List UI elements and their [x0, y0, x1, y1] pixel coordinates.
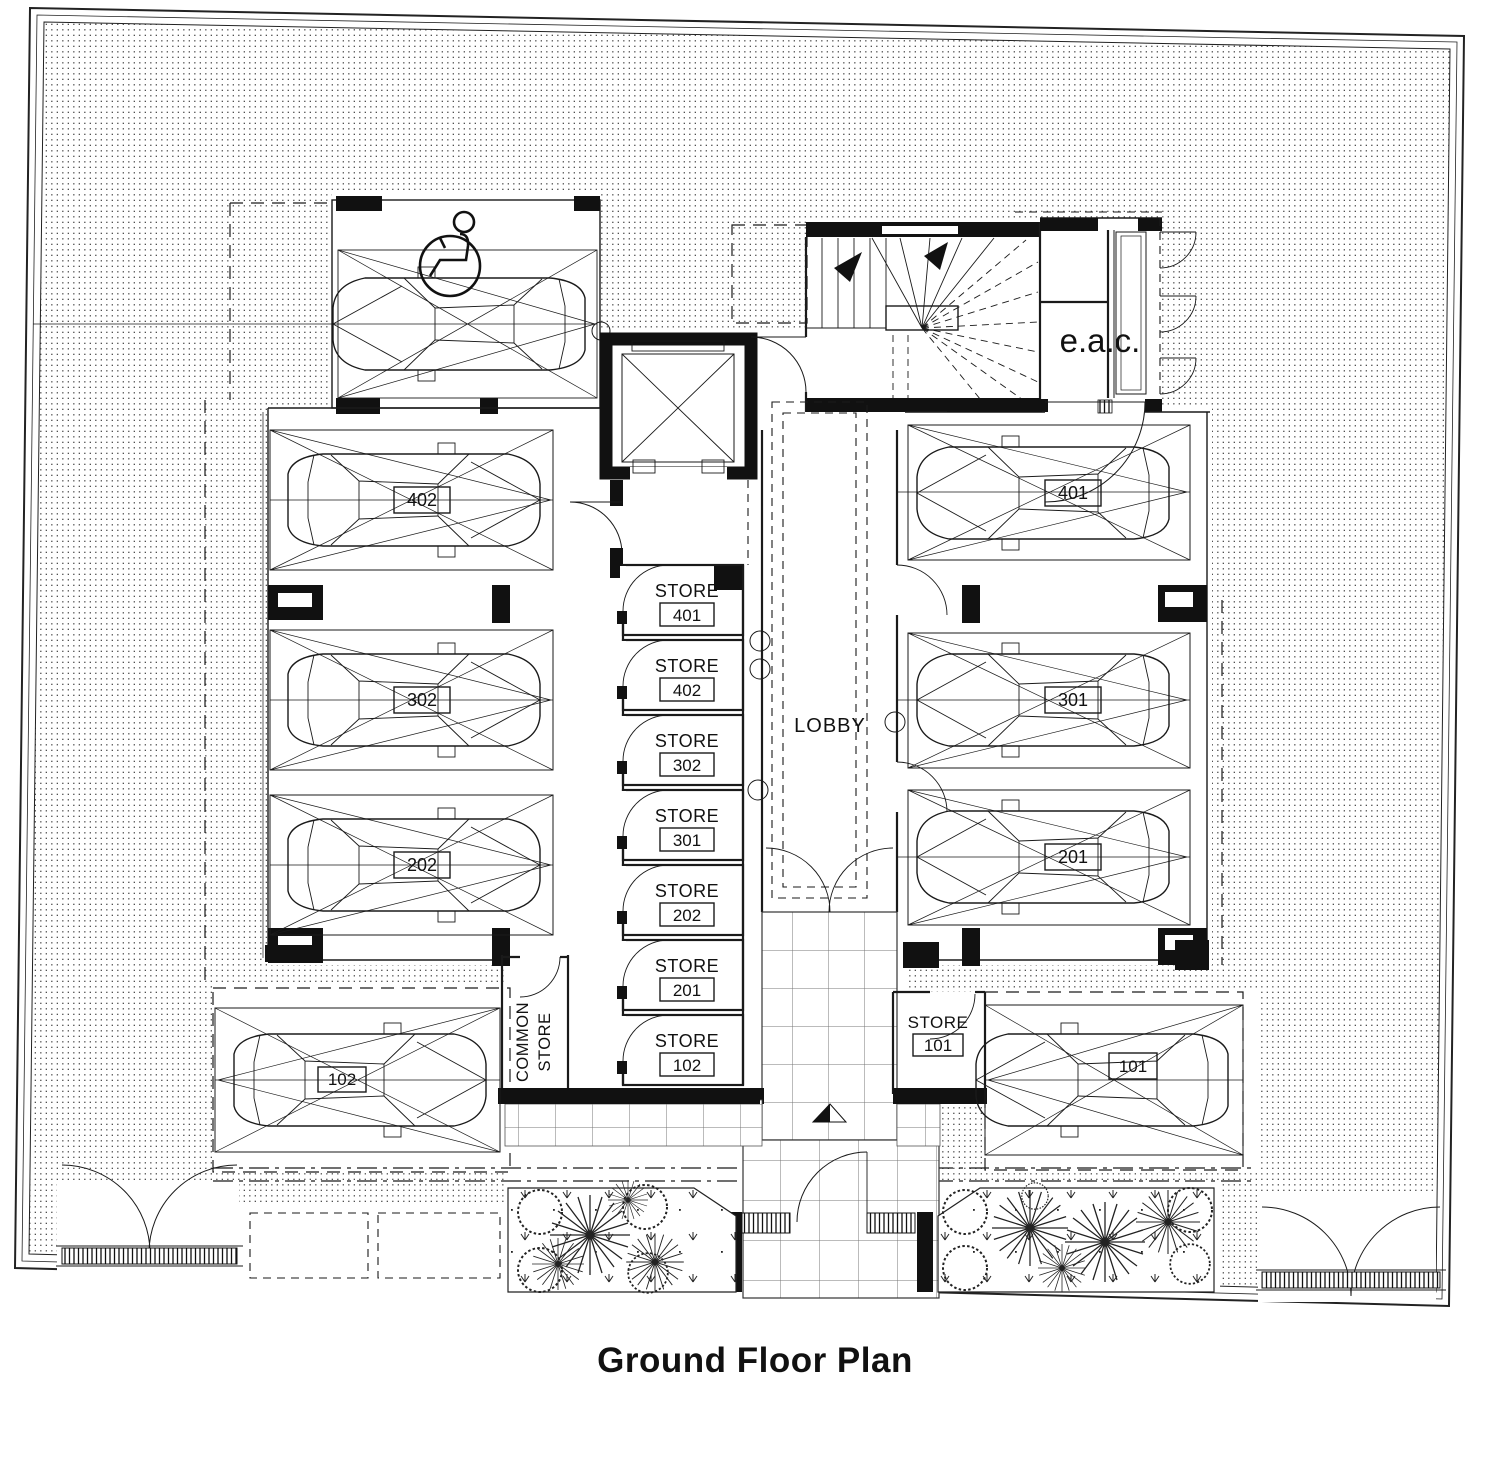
- store-label: STORE: [655, 1031, 719, 1051]
- store-number: 401: [673, 606, 701, 625]
- garden-left: [508, 1180, 736, 1293]
- eac-room-label: e.a.c.: [1060, 322, 1141, 359]
- parking-stall-number: 301: [1058, 690, 1088, 710]
- store-label: STORE: [655, 956, 719, 976]
- store-number: 402: [673, 681, 701, 700]
- store-number: 102: [673, 1056, 701, 1075]
- store-label: STORE: [655, 581, 719, 601]
- parking-stall-number: 402: [407, 490, 437, 510]
- drawing-title: Ground Floor Plan: [597, 1341, 913, 1380]
- store-label: STORE: [908, 1013, 969, 1032]
- store-label: STORE: [655, 881, 719, 901]
- store-number: 201: [673, 981, 701, 1000]
- store-number: 202: [673, 906, 701, 925]
- store-number: 101: [924, 1036, 952, 1055]
- parking-stall-number: 302: [407, 690, 437, 710]
- parking-stall-number: 201: [1058, 847, 1088, 867]
- parking-stall-number: 401: [1058, 483, 1088, 503]
- store-label: STORE: [655, 731, 719, 751]
- store-label: STORE: [655, 806, 719, 826]
- parking-stall-number: 102: [328, 1070, 356, 1089]
- common-store-label-line2: STORE: [536, 1012, 554, 1071]
- common-store-label-line1: COMMON: [514, 1002, 532, 1082]
- store-label: STORE: [655, 656, 719, 676]
- store-number: 302: [673, 756, 701, 775]
- floor-plan-sheet: e.a.c. 402 302 202 401 30: [0, 0, 1499, 1477]
- elevator: [592, 322, 751, 481]
- floor-plan-drawing: e.a.c. 402 302 202 401 30: [0, 0, 1499, 1477]
- lobby-label: LOBBY: [794, 715, 866, 737]
- parking-stall-number: 202: [407, 855, 437, 875]
- store-number: 301: [673, 831, 701, 850]
- parking-stall-number: 101: [1119, 1057, 1147, 1076]
- garden-right: [938, 1183, 1214, 1292]
